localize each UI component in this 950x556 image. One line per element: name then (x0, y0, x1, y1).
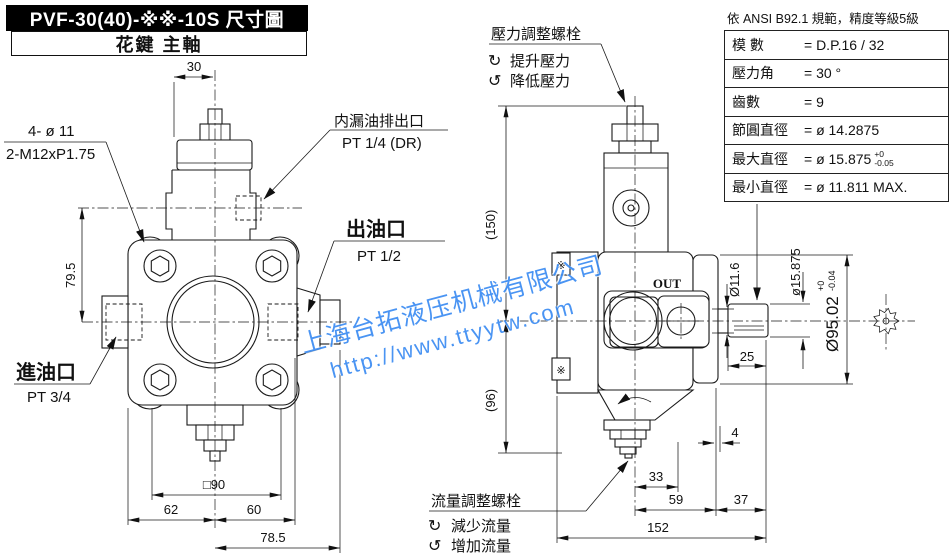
spline-symbol (874, 294, 899, 352)
dimension-drawing-page: 30 79.5 □90 62 60 78.5 4- ø 11 2-M12xP1.… (0, 0, 950, 556)
cw-rotation-icon: ↻ (488, 53, 501, 70)
spec-row-max-dia: 最大直徑 = ø 15.875 +0 -0.05 (725, 144, 948, 173)
dim-top-width: 30 (187, 59, 201, 74)
holes-label-1: 4- ø 11 (28, 123, 74, 140)
drain-leader (264, 130, 330, 199)
flow-bolt-front (187, 405, 243, 461)
dim-right-half: 60 (247, 502, 261, 517)
flow-adjuster-callout: 流量調整螺栓 ↻ 減少流量 ↺ 增加流量 (428, 461, 628, 555)
drain-port-size: PT 1/4 (DR) (342, 135, 422, 152)
pressure-lower-label: 降低壓力 (510, 73, 570, 90)
dim-shaft-dia: ø15.875 (788, 248, 803, 296)
dim-pilot-dia: Ø95.02 (823, 296, 842, 352)
flow-adjuster-label: 流量調整螺栓 (431, 493, 521, 510)
flow-decrease-label: 減少流量 (451, 518, 511, 535)
inlet-port-size: PT 3/4 (27, 389, 71, 406)
outlet-port-label: 出油口 (346, 217, 406, 241)
section-mark-top: ※ (556, 260, 565, 272)
dim-shaft-len: 25 (740, 349, 754, 364)
drawing-subtitle: 花鍵 主軸 (11, 31, 307, 56)
pressure-bolt-front (177, 109, 252, 170)
drain-port-label: 内漏油排出口 (334, 113, 424, 130)
pressure-raise-label: 提升壓力 (510, 53, 570, 70)
dim-pilot-tol-top: +0 (816, 281, 826, 291)
pump-neck-front (166, 170, 261, 240)
ccw-rotation-icon: ↺ (488, 73, 501, 90)
dim-upper-height: 79.5 (63, 263, 78, 288)
pump-flange-front (128, 240, 297, 405)
dim-59: 59 (669, 492, 683, 507)
dim-shaft-step-dia: Ø11.6 (727, 263, 742, 297)
ccw-rotation-icon: ↺ (428, 538, 441, 555)
outlet-port-size: PT 1/2 (357, 248, 401, 265)
front-view (102, 109, 340, 461)
dim-total: 152 (647, 520, 669, 535)
section-mark-bottom: ※ (556, 365, 565, 377)
spec-row-pressure-angle: 壓力角 = 30 ° (725, 59, 948, 88)
dim-33: 33 (649, 469, 663, 484)
dim-37: 37 (734, 492, 748, 507)
dim-gap: 4 (731, 425, 738, 440)
dim-pilot-tol-bot: -0.04 (827, 270, 837, 291)
pressure-adjuster-label: 壓力調整螺栓 (491, 26, 581, 43)
pressure-adjuster-callout: 壓力調整螺栓 ↻ 提升壓力 ↺ 降低壓力 (488, 26, 625, 102)
holes-leader (106, 142, 144, 242)
dim-side-upper-height: (150) (483, 210, 498, 240)
dim-outlet-face: 78.5 (260, 530, 285, 545)
spec-row-module: 模 數 = D.P.16 / 32 (725, 31, 948, 59)
out-port-block (604, 291, 709, 350)
flow-bolt-side (604, 420, 650, 458)
spline-spec-table: 依 ANSI B92.1 規範，精度等級5級 模 數 = D.P.16 / 32… (724, 8, 949, 202)
flow-increase-label: 增加流量 (451, 538, 511, 555)
dim-left-half: 62 (164, 502, 178, 517)
spec-note: 依 ANSI B92.1 規範，精度等級5級 (724, 8, 949, 27)
cw-rotation-icon: ↻ (428, 518, 441, 535)
max-dia-tolerance: +0 -0.05 (874, 150, 893, 168)
spec-row-pitch-dia: 節圓直徑 = ø 14.2875 (725, 116, 948, 145)
drawing-title: PVF-30(40)-※※-10S 尺寸圖 (6, 5, 308, 31)
inlet-port-label: 進油口 (16, 360, 76, 384)
dim-side-lower-height: (96) (483, 389, 498, 412)
holes-label-2: 2-M12xP1.75 (6, 146, 95, 163)
spec-row-min-dia: 最小直徑 = ø 11.811 MAX. (725, 173, 948, 202)
spec-row-teeth: 齒數 = 9 (725, 87, 948, 116)
dim-square: □90 (203, 477, 225, 492)
out-port-label: OUT (653, 276, 682, 291)
